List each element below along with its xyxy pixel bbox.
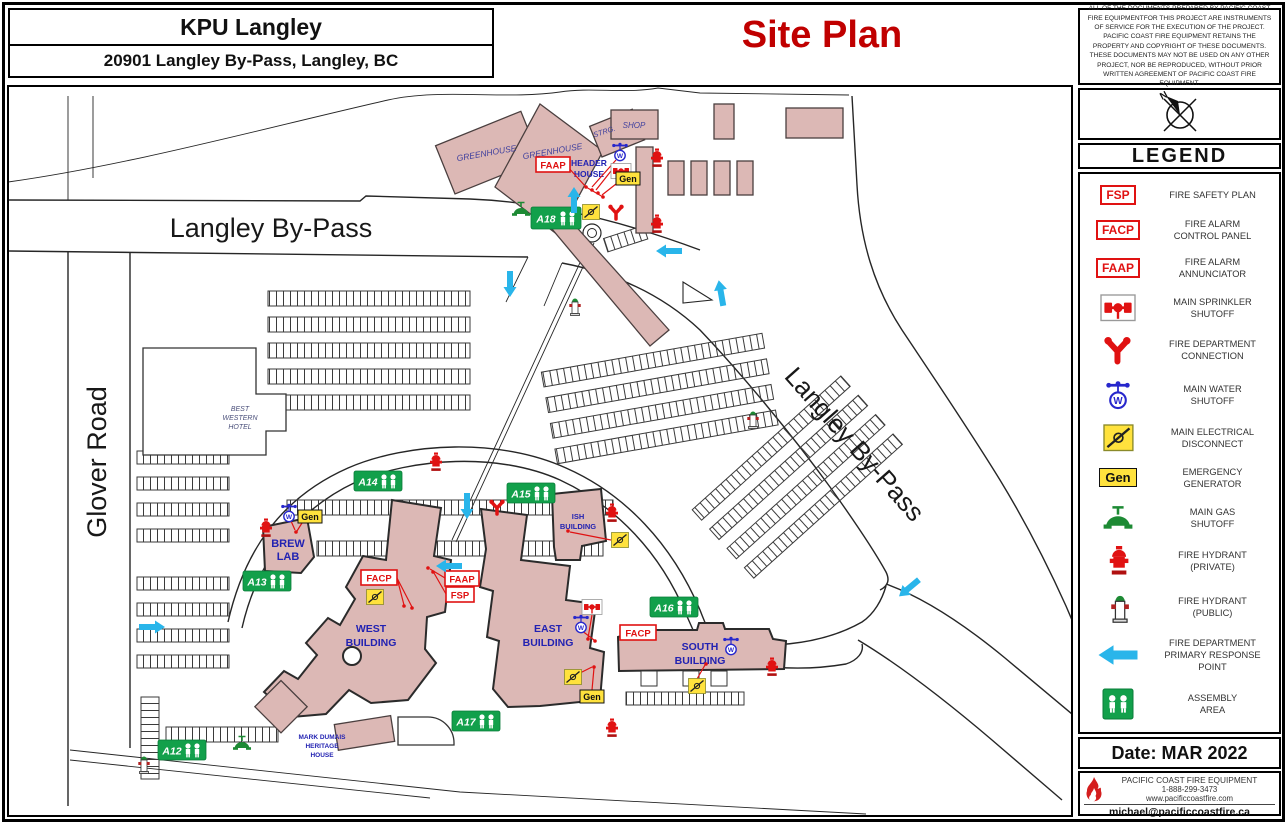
legend-item-sprinkler: MAIN SPRINKLER SHUTOFF xyxy=(1082,294,1277,322)
legend-label: EMERGENCY GENERATOR xyxy=(1154,466,1277,490)
disclaimer-box: ALL OF THE DOCUMENTS PREPARED BY PACIFIC… xyxy=(1078,8,1281,85)
legend: FSP FIRE SAFETY PLAN FACP FIRE ALARM CON… xyxy=(1078,172,1281,734)
sheet-title: Site Plan xyxy=(690,14,954,57)
legend-item-facp: FACP FIRE ALARM CONTROL PANEL xyxy=(1082,218,1277,242)
company-phone: 1-888-299-3473 xyxy=(1104,785,1275,794)
date-text: Date: MAR 2022 xyxy=(1111,743,1247,764)
legend-item-fdc: FIRE DEPARTMENT CONNECTION xyxy=(1082,335,1277,365)
legend-label: FIRE ALARM CONTROL PANEL xyxy=(1154,218,1277,242)
legend-title: LEGEND xyxy=(1132,145,1227,168)
project-title: KPU Langley xyxy=(180,14,322,41)
legend-title-box: LEGEND xyxy=(1078,143,1281,169)
compass-box: N xyxy=(1078,88,1281,140)
legend-item-assembly: ASSEMBLY AREA xyxy=(1082,687,1277,721)
legend-item-electrical: MAIN ELECTRICAL DISCONNECT xyxy=(1082,424,1277,452)
facp-tag-label: FACP xyxy=(1096,220,1140,240)
legend-item-generator: Gen EMERGENCY GENERATOR xyxy=(1082,466,1277,490)
company-email: michael@pacificcoastfire.ca xyxy=(1084,804,1275,818)
legend-label: FIRE SAFETY PLAN xyxy=(1154,189,1277,201)
company-website: www.pacificcoastfire.com xyxy=(1104,794,1275,803)
date-box: Date: MAR 2022 xyxy=(1078,737,1281,769)
legend-label: FIRE DEPARTMENT CONNECTION xyxy=(1154,338,1277,362)
project-address: 20901 Langley By-Pass, Langley, BC xyxy=(104,51,398,71)
company-name: PACIFIC COAST FIRE EQUIPMENT xyxy=(1104,775,1275,785)
legend-label: MAIN GAS SHUTOFF xyxy=(1154,506,1277,530)
legend-label: FIRE HYDRANT (PUBLIC) xyxy=(1154,595,1277,619)
project-title-box: KPU Langley xyxy=(8,8,494,46)
legend-label: MAIN SPRINKLER SHUTOFF xyxy=(1154,296,1277,320)
legend-label: MAIN ELECTRICAL DISCONNECT xyxy=(1154,426,1277,450)
titleblock-footer: PACIFIC COAST FIRE EQUIPMENT 1-888-299-3… xyxy=(1078,771,1281,816)
generator-tag: Gen xyxy=(1082,468,1154,487)
legend-label: ASSEMBLY AREA xyxy=(1154,692,1277,716)
fsp-tag-label: FSP xyxy=(1100,185,1135,205)
legend-item-hydrant-public: FIRE HYDRANT (PUBLIC) xyxy=(1082,591,1277,624)
facp-tag: FACP xyxy=(1082,220,1154,240)
fire-hydrant-public-icon xyxy=(1082,591,1154,624)
site-plan-sheet: W Gen FAC xyxy=(0,0,1287,824)
legend-item-faap: FAAP FIRE ALARM ANNUNCIATOR xyxy=(1082,256,1277,280)
fsp-tag: FSP xyxy=(1082,185,1154,205)
legend-item-gas: MAIN GAS SHUTOFF xyxy=(1082,504,1277,532)
main-gas-shutoff-icon xyxy=(1082,504,1154,532)
fire-department-connection-icon xyxy=(1082,335,1154,365)
project-address-box: 20901 Langley By-Pass, Langley, BC xyxy=(8,44,494,78)
flame-logo-icon xyxy=(1084,776,1104,802)
fire-hydrant-private-icon xyxy=(1082,545,1154,577)
legend-item-response-point: FIRE DEPARTMENT PRIMARY RESPONSE POINT xyxy=(1082,637,1277,673)
faap-tag-label: FAAP xyxy=(1096,258,1140,278)
disclaimer-text: ALL OF THE DOCUMENTS PREPARED BY PACIFIC… xyxy=(1087,4,1272,88)
response-arrow-icon xyxy=(1082,644,1154,666)
faap-tag: FAAP xyxy=(1082,258,1154,278)
main-water-shutoff-icon xyxy=(1082,379,1154,411)
north-arrow-icon: N xyxy=(1120,91,1240,137)
main-sprinkler-shutoff-icon xyxy=(1082,294,1154,322)
legend-item-water: MAIN WATER SHUTOFF xyxy=(1082,379,1277,411)
legend-label: FIRE DEPARTMENT PRIMARY RESPONSE POINT xyxy=(1154,637,1277,673)
legend-item-hydrant-private: FIRE HYDRANT (PRIVATE) xyxy=(1082,545,1277,577)
legend-label: FIRE ALARM ANNUNCIATOR xyxy=(1154,256,1277,280)
assembly-area-icon xyxy=(1082,687,1154,721)
main-electrical-disconnect-icon xyxy=(1082,424,1154,452)
compass-north-label: N xyxy=(1158,91,1170,103)
legend-item-fsp: FSP FIRE SAFETY PLAN xyxy=(1082,185,1277,205)
legend-label: MAIN WATER SHUTOFF xyxy=(1154,383,1277,407)
generator-tag-label: Gen xyxy=(1099,468,1136,487)
legend-label: FIRE HYDRANT (PRIVATE) xyxy=(1154,549,1277,573)
